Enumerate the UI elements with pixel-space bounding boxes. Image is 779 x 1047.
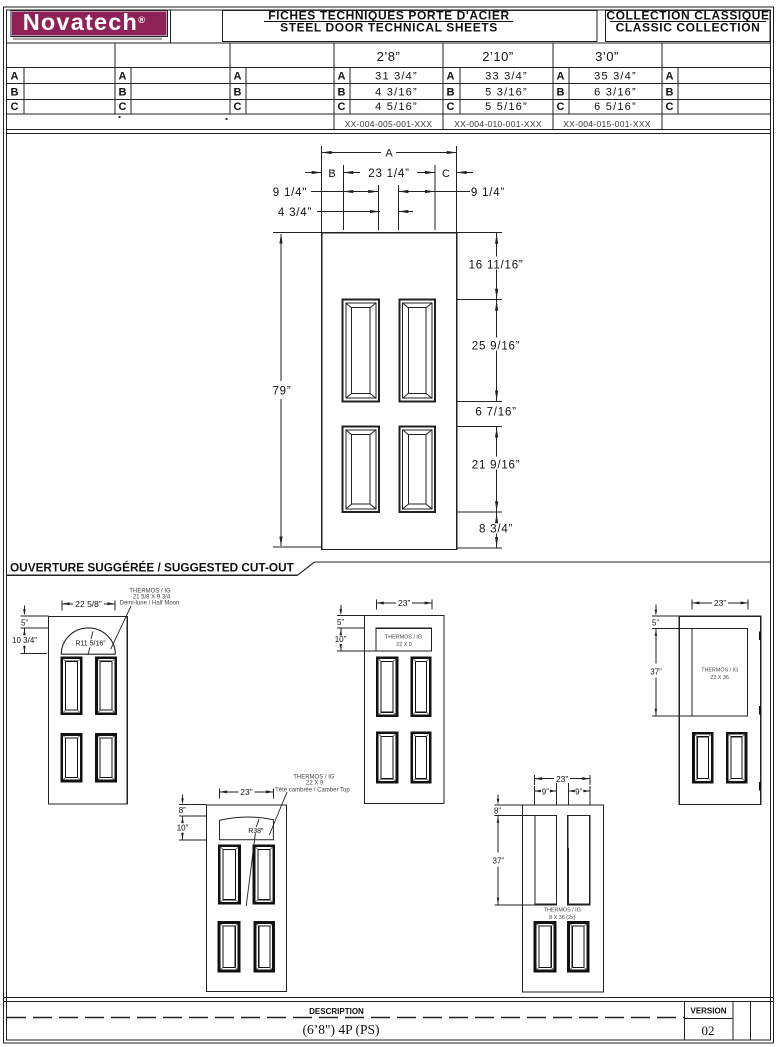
svg-text:C: C xyxy=(338,101,346,113)
svg-text:5 3/16”: 5 3/16” xyxy=(485,87,528,99)
svg-text:B: B xyxy=(328,168,335,180)
svg-text:Demi-lune / Half Moon: Demi-lune / Half Moon xyxy=(120,601,180,607)
svg-text:THERMOS / IG: THERMOS / IG xyxy=(544,908,581,914)
svg-text:23”: 23” xyxy=(398,598,410,608)
svg-text:33 3/4”: 33 3/4” xyxy=(485,71,528,83)
svg-text:8 X 36 (2x): 8 X 36 (2x) xyxy=(549,915,576,921)
svg-text:THERMOS / IG: THERMOS / IG xyxy=(385,635,422,641)
svg-text:35 3/4”: 35 3/4” xyxy=(594,71,637,83)
svg-text:5”: 5” xyxy=(652,618,659,627)
svg-text:A: A xyxy=(119,71,127,83)
svg-text:16 11/16”: 16 11/16” xyxy=(469,260,524,272)
svg-text:B: B xyxy=(11,87,19,99)
svg-text:23”: 23” xyxy=(556,774,568,784)
svg-text:CLASSIC COLLECTION: CLASSIC COLLECTION xyxy=(616,21,761,35)
svg-text:OUVERTURE SUGGÉRÉE / SUGGESTED: OUVERTURE SUGGÉRÉE / SUGGESTED CUT-OUT xyxy=(10,561,295,575)
svg-text:C: C xyxy=(11,101,19,113)
svg-text:10”: 10” xyxy=(335,635,347,644)
svg-text:VERSION: VERSION xyxy=(690,1007,726,1016)
svg-text:31 3/4”: 31 3/4” xyxy=(375,71,418,83)
svg-text:9”: 9” xyxy=(575,787,582,796)
svg-text:XX-004-010-001-XXX: XX-004-010-001-XXX xyxy=(454,119,542,129)
svg-text:22 X 9: 22 X 9 xyxy=(306,780,324,786)
svg-text:C: C xyxy=(234,101,242,113)
svg-text:B: B xyxy=(666,87,674,99)
svg-text:C: C xyxy=(557,101,565,113)
svg-text:C: C xyxy=(119,101,127,113)
svg-text:2’8”: 2’8” xyxy=(377,49,401,64)
svg-text:5”: 5” xyxy=(21,618,28,627)
svg-text:A: A xyxy=(447,71,455,83)
svg-text:4 3/4”: 4 3/4” xyxy=(278,207,312,219)
svg-text:37”: 37” xyxy=(493,856,505,865)
svg-text:A: A xyxy=(385,148,393,160)
svg-text:XX-004-015-001-XXX: XX-004-015-001-XXX xyxy=(563,119,651,129)
svg-text:A: A xyxy=(557,71,565,83)
svg-text:22 X 36: 22 X 36 xyxy=(710,675,729,681)
svg-text:XX-004-005-001-XXX: XX-004-005-001-XXX xyxy=(345,119,433,129)
svg-text:79”: 79” xyxy=(272,386,291,398)
svg-text:21 9/16”: 21 9/16” xyxy=(472,460,521,472)
svg-text:STEEL DOOR TECHNICAL SHEETS: STEEL DOOR TECHNICAL SHEETS xyxy=(280,21,498,35)
svg-text:4 5/16”: 4 5/16” xyxy=(375,101,418,113)
svg-text:R38”: R38” xyxy=(248,828,264,835)
svg-text:23”: 23” xyxy=(240,787,252,797)
svg-text:A: A xyxy=(234,71,242,83)
svg-text:9”: 9” xyxy=(542,787,549,796)
svg-text:B: B xyxy=(557,87,565,99)
svg-text:THERMOS / IG: THERMOS / IG xyxy=(701,668,738,674)
svg-text:C: C xyxy=(442,168,450,180)
svg-text:5 5/16”: 5 5/16” xyxy=(485,101,528,113)
svg-text:22 X 9: 22 X 9 xyxy=(396,642,412,648)
svg-text:2’10”: 2’10” xyxy=(482,49,513,64)
svg-text:5”: 5” xyxy=(337,618,344,627)
svg-text:3’0”: 3’0” xyxy=(595,49,619,64)
svg-text:6 7/16”: 6 7/16” xyxy=(475,407,516,419)
svg-text:9 1/4": 9 1/4" xyxy=(273,187,307,199)
svg-text:B: B xyxy=(234,87,242,99)
svg-text:8 3/4”: 8 3/4” xyxy=(479,524,513,536)
svg-text:THERMOS / IG: THERMOS / IG xyxy=(293,774,335,780)
svg-text:6 3/16”: 6 3/16” xyxy=(594,87,637,99)
svg-text:B: B xyxy=(119,87,127,99)
svg-text:R11 5/16”: R11 5/16” xyxy=(75,640,106,647)
svg-text:23 1/4”: 23 1/4” xyxy=(368,168,409,180)
svg-text:B: B xyxy=(338,87,346,99)
svg-text:C: C xyxy=(447,101,455,113)
svg-text:10”: 10” xyxy=(177,823,189,832)
svg-text:10 3/4”: 10 3/4” xyxy=(12,636,37,645)
svg-text:23”: 23” xyxy=(714,598,726,608)
svg-text:8”: 8” xyxy=(494,807,501,816)
svg-text:02: 02 xyxy=(702,1023,715,1038)
svg-text:22 5/8”: 22 5/8” xyxy=(75,599,102,609)
svg-text:4 3/16”: 4 3/16” xyxy=(375,87,418,99)
svg-text:9 1/4”: 9 1/4” xyxy=(471,187,505,199)
svg-text:A: A xyxy=(666,71,674,83)
svg-text:6 5/16”: 6 5/16” xyxy=(594,101,637,113)
svg-text:8”: 8” xyxy=(179,806,186,815)
svg-text:C: C xyxy=(666,101,674,113)
svg-text:DESCRIPTION: DESCRIPTION xyxy=(309,1007,364,1016)
svg-text:37”: 37” xyxy=(650,667,662,676)
svg-text:Novatech®: Novatech® xyxy=(23,9,147,35)
svg-text:A: A xyxy=(11,71,19,83)
svg-text:25 9/16”: 25 9/16” xyxy=(472,341,521,353)
svg-text:A: A xyxy=(338,71,346,83)
svg-text:B: B xyxy=(447,87,455,99)
svg-text:(6’8") 4P (PS): (6’8") 4P (PS) xyxy=(302,1022,379,1037)
